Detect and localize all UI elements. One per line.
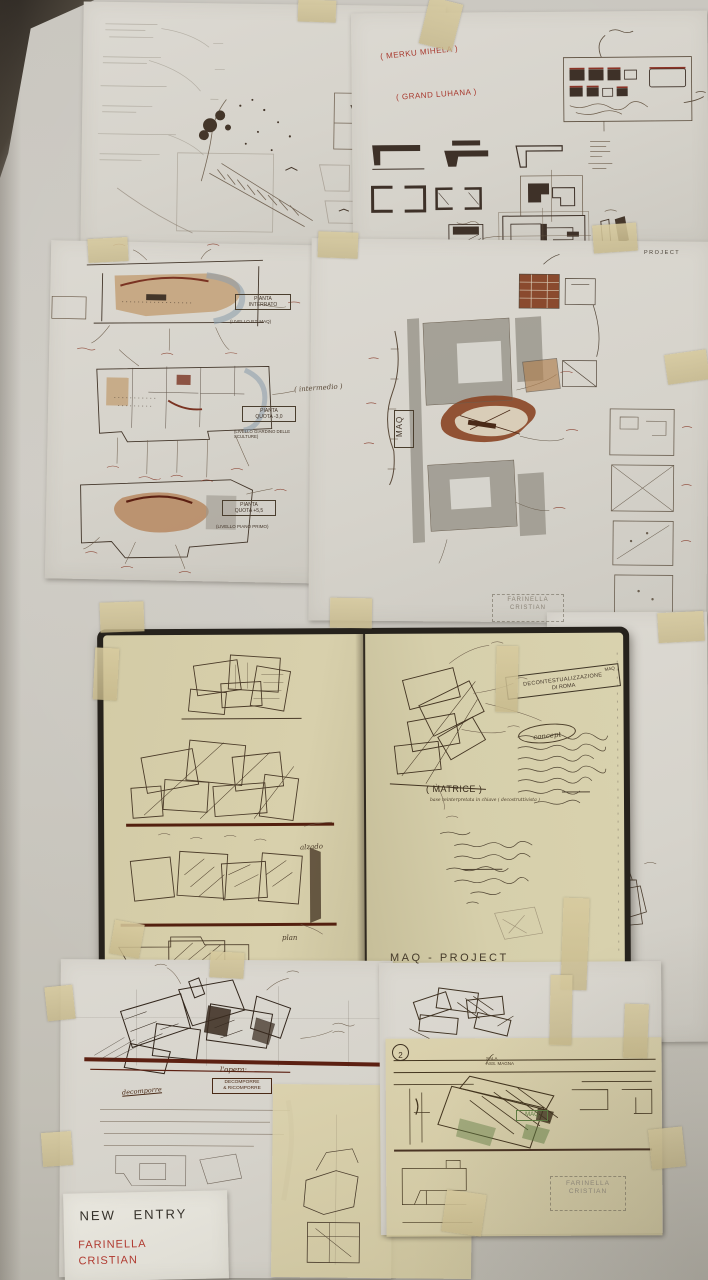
tape-piece [41,1131,73,1167]
card-name-line2: CRISTIAN [78,1254,138,1268]
opera-box-line2: & RICOMPORRE [216,1086,268,1092]
sala-label: SALA ASS. MAGNA [486,1056,514,1066]
sala-line2: ASS. MAGNA [486,1061,514,1066]
tape-piece [648,1126,686,1169]
opera-box: DECOMPORRE & RICOMPORRE [212,1078,272,1094]
plan1-title-box: PIANTA INTERRATO [235,294,291,310]
circled-number-text: 2 [398,1051,402,1060]
concept-circle-text: concept [533,731,562,742]
tape-piece [495,646,518,712]
tape-piece [664,349,708,385]
plan-label: plan [282,934,297,942]
tape-piece [109,920,144,959]
maq-project-footer: MAQ - PROJECT [390,952,509,965]
signature-line1: FARINELLA [493,597,563,605]
maq-green-text: MAQ [520,1112,544,1119]
bottom-right-signature: FARINELLA CRISTIAN [550,1176,626,1211]
plan2-quota: QUOTA -3,0 [246,414,292,420]
plan1-level: (LIVELLO P.T. MAQ) [230,319,271,324]
tape-piece [623,1004,649,1059]
tape-piece [592,222,638,253]
typology-studies-sketch [351,10,708,247]
plan2-level: (LIVELLO GIARDINO DELLE SCULTURE) [234,430,298,440]
tape-piece [298,0,337,23]
tape-piece [318,231,359,258]
tape-piece [44,985,75,1022]
matrice-label: ( MATRICE ) [426,784,482,794]
circled-number: 2 [392,1044,409,1061]
project-stamp: PROJECT [644,250,680,256]
signature-line2: CRISTIAN [493,605,563,613]
tape-piece [657,611,705,643]
stamp-line2: CRISTIAN [551,1188,625,1196]
alzado-label: alzado [300,842,323,851]
plan1-quota: INTERRATO [239,302,287,308]
plan3-level: (LIVELLO PIANO PRIMO) [216,524,269,529]
stamp-line1: FARINELLA [551,1180,625,1188]
tape-piece [549,975,572,1045]
new-entry-card: NEW ENTRY FARINELLA CRISTIAN [63,1190,229,1280]
photo-of-sketch-wall: NEW ENTRY FARINELLA CRISTIAN ( MERKU MIH… [0,0,708,1280]
sketchbook-left-page [103,634,365,973]
card-name-line1: FARINELLA [78,1238,147,1252]
plan3-title-box: PIANTA QUOTA +5,5 [222,500,276,516]
maq-vertical-label: MAQ [394,410,414,448]
matrice-subtext: base reinterpretata in chiave ( decostru… [430,798,570,803]
elevation-studies-sketch [103,634,365,973]
new-entry-text: NEW ENTRY [79,1207,187,1224]
plan2-title-box: PIANTA QUOTA -3,0 [242,406,296,422]
sheet-site-plan [308,238,708,623]
site-plan-sketch [308,238,708,623]
tape-piece [441,1189,486,1236]
tape-piece [87,237,128,263]
plan3-quota: QUOTA +5,5 [226,508,272,514]
opera-label: l'opera: [220,1066,247,1074]
maq-label-text: MAQ [395,419,405,437]
tape-piece [209,951,244,979]
tape-piece [93,647,120,700]
tape-piece [99,601,144,633]
site-sheet-signature: FARINELLA CRISTIAN [492,594,564,622]
sheet-top-right-typology-studies [351,10,708,247]
tape-piece [330,598,373,629]
maq-green-box: MAQ [516,1110,548,1121]
